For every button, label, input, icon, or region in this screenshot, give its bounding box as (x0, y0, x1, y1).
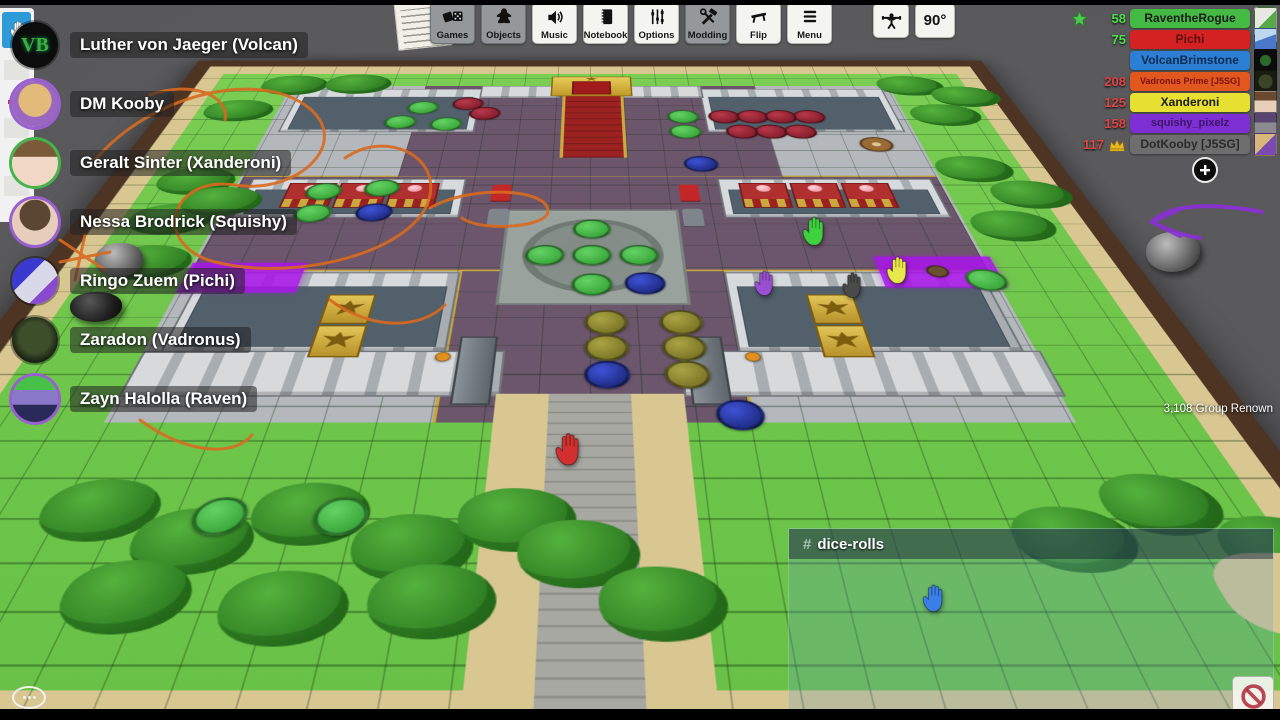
scoreboard-row[interactable]: 75 Pichi (1092, 29, 1277, 49)
player-cursor-green (800, 214, 826, 248)
market-stall (789, 183, 846, 208)
player-score: 117 (1070, 137, 1104, 152)
player-score: 125 (1092, 95, 1126, 110)
scoreboard-row[interactable]: VolcanBrimstone (1092, 50, 1277, 70)
avatar (12, 199, 58, 245)
wall-segment (622, 86, 704, 98)
scoreboard-row[interactable]: 58 RaventheRogue (1071, 8, 1277, 28)
armor-statue (682, 209, 705, 226)
voice-player-row: VB Luther von Jaeger (Volcan) (12, 22, 308, 68)
modding-button[interactable]: Modding (685, 2, 730, 44)
player-avatar (1254, 112, 1277, 135)
voice-player-name: Luther von Jaeger (Volcan) (70, 32, 308, 58)
player-avatar (1254, 28, 1277, 51)
hamburger-menu-icon (800, 7, 820, 26)
player-cursor-purple (752, 268, 775, 298)
player-avatar (1254, 133, 1277, 156)
red-statue (490, 185, 512, 201)
main-toolbar: Games Objects Music Notebook (430, 2, 832, 44)
map-token[interactable] (585, 310, 629, 335)
map-token[interactable] (584, 335, 629, 361)
channel-hash: # (803, 536, 811, 553)
map-token[interactable] (624, 272, 667, 294)
avatar-monogram: VB (21, 34, 49, 57)
scoreboard-row[interactable]: 208 Vadronus Prime [J5SG] (1092, 71, 1277, 91)
crown-icon (1108, 137, 1126, 152)
city-wall (679, 351, 1066, 397)
voice-player-name: Zaradon (Vadronus) (70, 327, 251, 353)
stream-region-overlay: # dice-rolls (788, 528, 1274, 716)
avatar (12, 258, 58, 304)
table-flip-icon (748, 7, 769, 26)
voice-player-row: Zaradon (Vadronus) (12, 317, 251, 363)
player-score: 58 (1092, 11, 1126, 26)
map-token[interactable] (571, 273, 613, 295)
stall-orb (755, 185, 771, 192)
red-statue (678, 185, 700, 201)
phoenix-statue (307, 325, 368, 357)
map-token[interactable] (573, 220, 611, 239)
throne-seat (572, 81, 611, 94)
voice-player-row: Geralt Sinter (Xanderoni) (12, 140, 291, 186)
player-score: 208 (1092, 74, 1126, 89)
avatar (12, 140, 58, 186)
chat-bubble-icon[interactable] (12, 686, 46, 709)
player-name-pill[interactable]: Pichi (1130, 30, 1250, 49)
group-renown-label: 3,108 Group Renown (1164, 403, 1273, 415)
player-name-pill[interactable]: VolcanBrimstone (1130, 51, 1250, 70)
scoreboard-row[interactable]: 117 DotKooby [J5SG] (1070, 134, 1277, 154)
market-stall (738, 183, 793, 208)
scoreboard-row[interactable]: 125 Xanderoni (1092, 92, 1277, 112)
weightlifter-icon (880, 9, 903, 32)
options-button[interactable]: Options (634, 2, 679, 44)
bottom-letterbox-bar (0, 709, 1280, 720)
menu-button[interactable]: Menu (787, 2, 832, 44)
no-entry-icon (1240, 683, 1267, 710)
notebook-button[interactable]: Notebook (583, 2, 628, 44)
plus-icon (1199, 164, 1211, 176)
player-cursor-red (552, 430, 582, 468)
voice-player-name: Nessa Brodrick (Squishy) (70, 209, 297, 235)
player-name-pill[interactable]: squishy_pixelz (1130, 114, 1250, 133)
player-name-pill[interactable]: DotKooby [J5SG] (1130, 135, 1250, 154)
scoreboard-row[interactable]: 158 squishy_pixelz (1092, 113, 1277, 133)
avatar (12, 317, 58, 363)
app-window: # dice-rolls (0, 0, 1280, 720)
player-score: 75 (1092, 32, 1126, 47)
voice-player-row: Nessa Brodrick (Squishy) (12, 199, 297, 245)
stall-orb (407, 185, 423, 192)
notebook-icon (596, 7, 616, 26)
stall-base (387, 199, 435, 207)
channel-name: dice-rolls (817, 536, 884, 553)
phoenix-statue (318, 294, 376, 324)
player-score: 158 (1092, 116, 1126, 131)
player-name-pill[interactable]: Xanderoni (1130, 93, 1250, 112)
armor-statue (486, 209, 509, 226)
avatar (12, 81, 58, 127)
stall-base (744, 199, 792, 207)
grab-strength-button[interactable] (873, 3, 909, 38)
voice-player-row: DM Kooby (12, 81, 174, 127)
player-avatar (1254, 7, 1277, 30)
voice-player-row: Zayn Halolla (Raven) (12, 376, 257, 422)
map-token[interactable] (584, 361, 631, 389)
speaker-icon (545, 7, 565, 26)
stall-orb (807, 185, 824, 192)
player-cursor-gray (840, 270, 863, 300)
add-score-button[interactable] (1192, 157, 1218, 183)
voice-player-name: Geralt Sinter (Xanderoni) (70, 150, 291, 176)
star-icon (1071, 10, 1088, 27)
sliders-icon (647, 7, 667, 26)
stall-orb (858, 185, 875, 192)
player-name-pill[interactable]: Vadronus Prime [J5SG] (1130, 72, 1250, 91)
objects-button[interactable]: Objects (481, 2, 526, 44)
rotate-degrees-button[interactable]: 90° (915, 3, 955, 38)
stream-header: # dice-rolls (789, 529, 1273, 559)
building-floor (737, 286, 1011, 346)
tools-icon (698, 7, 718, 26)
avatar: VB (12, 22, 58, 68)
music-button[interactable]: Music (532, 2, 577, 44)
flip-button[interactable]: Flip (736, 2, 781, 44)
map-token[interactable] (572, 245, 612, 265)
golden-throne (550, 77, 632, 97)
stall-base (849, 199, 898, 207)
meeple-icon (494, 7, 514, 26)
stall-base (796, 199, 844, 207)
voice-player-name: DM Kooby (70, 91, 174, 117)
player-avatar (1254, 70, 1277, 93)
voice-player-name: Ringo Zuem (Pichi) (70, 268, 245, 294)
player-cursor-blue (920, 582, 945, 614)
player-cursor-yellow (884, 254, 909, 286)
player-avatar (1254, 49, 1277, 72)
avatar (12, 376, 58, 422)
player-name-pill[interactable]: RaventheRogue (1130, 9, 1250, 28)
wall-segment (479, 86, 561, 98)
map-token[interactable] (619, 245, 660, 265)
toolbar-right: 90° (873, 3, 955, 38)
voice-player-name: Zayn Halolla (Raven) (70, 386, 257, 412)
games-button[interactable]: Games (430, 2, 475, 44)
player-avatar (1254, 91, 1277, 114)
dice-icon (442, 7, 464, 25)
top-letterbox-bar (0, 0, 1280, 5)
voice-player-row: Ringo Zuem (Pichi) (12, 258, 245, 304)
